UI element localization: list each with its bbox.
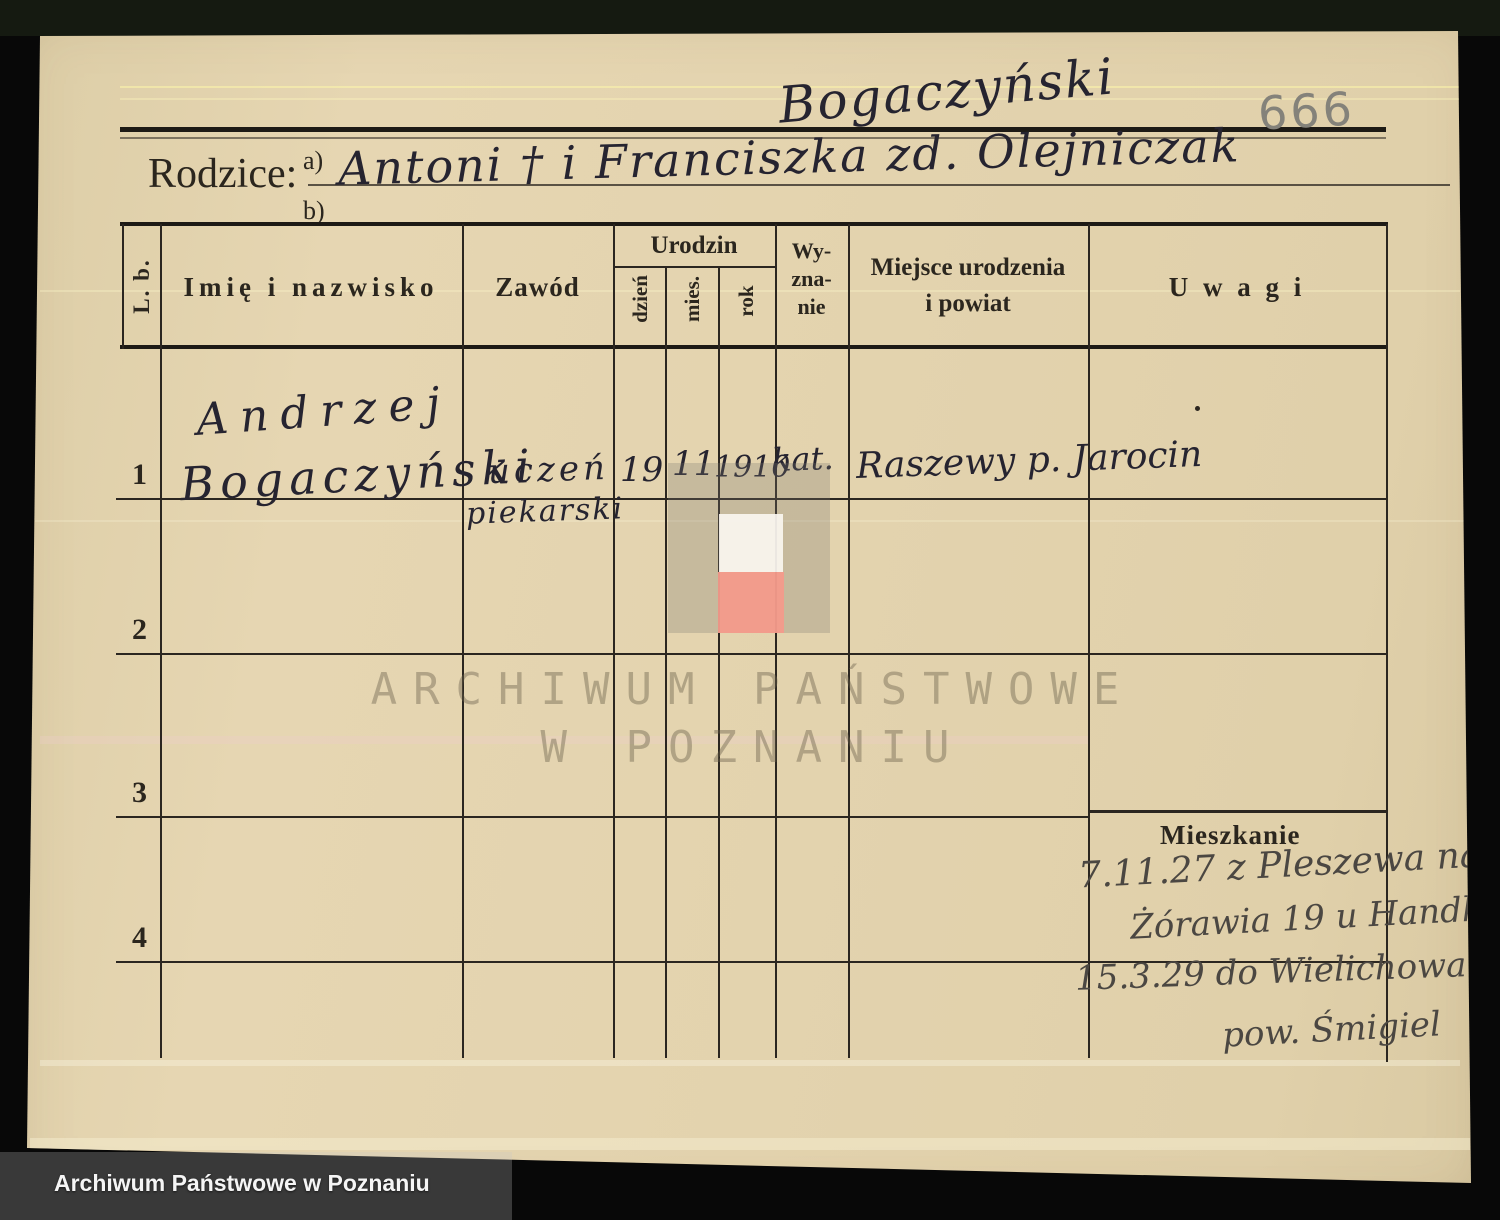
table-vline (718, 268, 720, 1058)
entry-birthplace: Raszewy p. Jarocin (855, 434, 1203, 487)
row-divider-3 (116, 816, 1090, 818)
header-religion-line2: zna- (775, 266, 848, 292)
row-divider-2 (116, 653, 1388, 655)
line-a-label: a) (303, 146, 323, 176)
table-header-bottom-border (120, 345, 1388, 349)
scan-streak (40, 1060, 1460, 1066)
header-religion-line3: nie (775, 294, 848, 320)
overlay-white-square (719, 514, 783, 572)
table-vline (1088, 224, 1090, 1058)
entry-occupation-line1: uczeń (487, 448, 609, 492)
mieszkanie-note-line3: 15.3.29 do Wielichowa (1074, 945, 1467, 999)
overlay-red-square (718, 572, 784, 633)
header-remarks: U w a g i (1088, 272, 1386, 303)
table-vline (462, 224, 464, 1058)
watermark-line2: W POZNANIU (330, 722, 1176, 773)
footer-caption: Archiwum Państwowe w Poznaniu (54, 1170, 430, 1197)
ink-speck (1195, 406, 1200, 411)
header-occupation: Zawód (462, 272, 613, 303)
header-birth-group: Urodzin (613, 232, 775, 260)
header-lb: L. b. (129, 246, 151, 326)
header-birthplace-line2: i powiat (848, 290, 1088, 318)
table-vline (613, 224, 615, 1058)
table-vline (848, 224, 850, 1058)
table-vline (160, 224, 162, 1058)
row-number-2: 2 (132, 613, 147, 647)
header-birth-day: dzień (628, 259, 650, 339)
entry-birth-day: 19 (620, 450, 663, 490)
archive-number: 666 (1257, 82, 1357, 141)
rodzice-label: Rodzice: (148, 150, 297, 198)
table-vline (665, 268, 667, 1058)
header-religion-line1: Wy- (775, 238, 848, 264)
header-birth-year: rok (734, 261, 756, 341)
header-birthplace-line1: Miejsce urodzenia (848, 254, 1088, 282)
table-top-border (120, 222, 1388, 226)
mieszkanie-note-line2: Żórawia 19 u Handke (1129, 888, 1500, 947)
watermark-line1: ARCHIWUM PAŃSTWOWE (330, 664, 1176, 715)
table-vline-right (1386, 224, 1388, 1062)
table-vline (775, 224, 777, 1058)
paper-sheet: Bogaczyński 666 Rodzice: a) b) Antoni † … (0, 0, 1500, 1220)
table-vline-left (122, 224, 124, 349)
scan-top-band (0, 0, 1500, 36)
scan-streak (30, 1138, 1470, 1150)
row-number-3: 3 (132, 776, 147, 810)
row-number-1: 1 (132, 458, 147, 492)
header-birth-month: mies. (680, 259, 702, 339)
header-name: Imię i nazwisko (160, 272, 462, 303)
entry-occupation-line2: piekarski (465, 491, 624, 531)
surname-handwritten: Bogaczyński (776, 47, 1117, 134)
row-number-4: 4 (132, 921, 147, 955)
mieszkanie-note-line4: pow. Śmigiel (1221, 1004, 1442, 1055)
scanned-record-card: Bogaczyński 666 Rodzice: a) b) Antoni † … (0, 0, 1500, 1220)
entry-name-line1: Andrzej (195, 377, 454, 446)
mieszkanie-rule (1088, 810, 1386, 813)
